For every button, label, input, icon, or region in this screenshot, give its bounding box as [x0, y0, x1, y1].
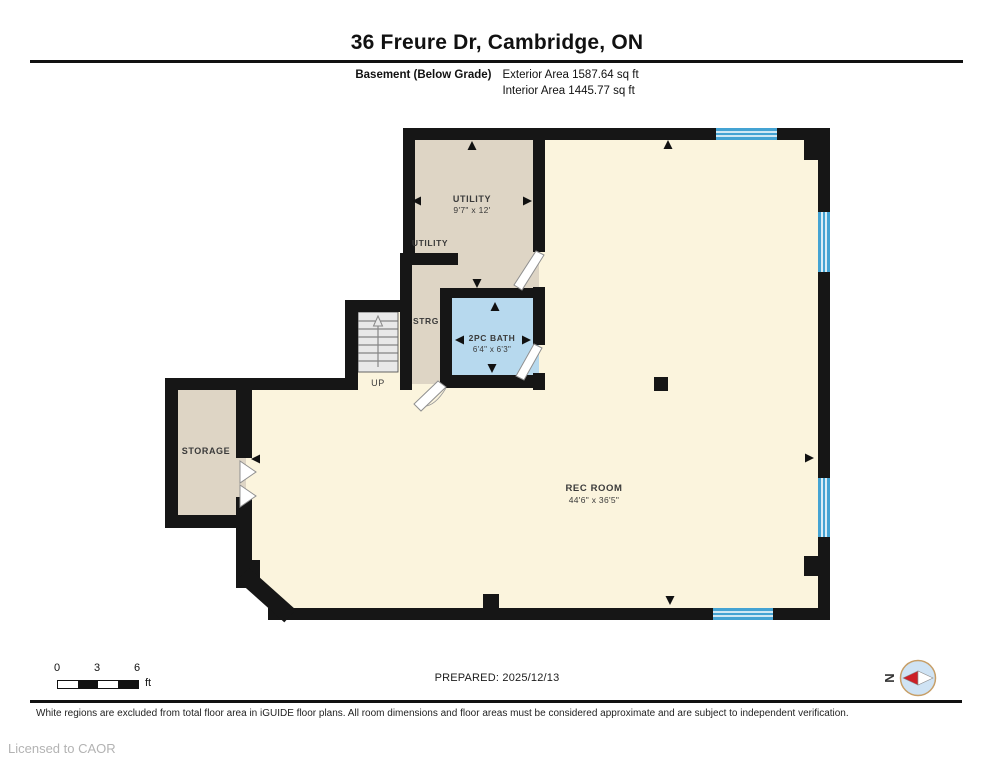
stairs-up-label: UP	[371, 378, 385, 388]
license-text: Licensed to CAOR	[8, 741, 116, 756]
wall-strg-bath-divider	[440, 288, 452, 388]
wall-right	[818, 128, 830, 620]
footer-divider	[30, 700, 962, 703]
rec-room-dims: 44'6" x 36'5"	[569, 495, 620, 505]
window-right-upper	[818, 212, 830, 272]
strg-label: STRG	[413, 316, 439, 326]
floor-plan: UTILITY 9'7" x 12' UTILITY STRG 2PC BATH…	[0, 0, 994, 768]
wall-strg-left	[400, 253, 412, 390]
wall-bath-top	[440, 288, 545, 298]
window-glass	[818, 212, 830, 272]
wall-storage-left	[165, 378, 178, 528]
wall-utility-right-upper	[533, 128, 545, 252]
compass: N	[875, 652, 951, 704]
window-top	[716, 128, 777, 140]
wall-utility-bottom-left	[403, 253, 458, 265]
wall-storage-top	[165, 378, 358, 390]
window-glass	[818, 478, 830, 537]
wall-bath-right-upper	[533, 287, 545, 345]
staircase	[358, 312, 398, 372]
window-bottom	[713, 608, 773, 620]
utility-label: UTILITY	[453, 194, 491, 204]
window-glass	[716, 128, 777, 140]
window-right-lower	[818, 478, 830, 537]
wall-notch-top-right	[804, 140, 820, 160]
prepared-date: PREPARED: 2025/12/13	[0, 672, 994, 684]
storage-label: STORAGE	[182, 446, 231, 456]
window-glass	[713, 608, 773, 620]
wall-bath-right-lower	[533, 373, 545, 390]
utility-dims: 9'7" x 12'	[453, 205, 490, 215]
support-column	[654, 377, 668, 391]
floorplan-page: 36 Freure Dr, Cambridge, ON Basement (Be…	[0, 0, 994, 768]
wall-notch-bottom-right	[804, 556, 820, 576]
disclaimer-text: White regions are excluded from total fl…	[36, 708, 966, 719]
utility-area-label: UTILITY	[412, 238, 448, 248]
wall-storage-right-upper	[236, 390, 252, 458]
wall-bump-bottom	[483, 594, 499, 609]
bath-label: 2PC BATH	[469, 333, 516, 343]
compass-north-label: N	[882, 673, 897, 682]
wall-stairwell-left	[345, 300, 358, 390]
wall-bath-bottom	[446, 375, 545, 388]
rec-room-label: REC ROOM	[565, 483, 622, 494]
bath-dims: 6'4" x 6'3"	[473, 345, 511, 354]
room-fills	[172, 134, 824, 614]
